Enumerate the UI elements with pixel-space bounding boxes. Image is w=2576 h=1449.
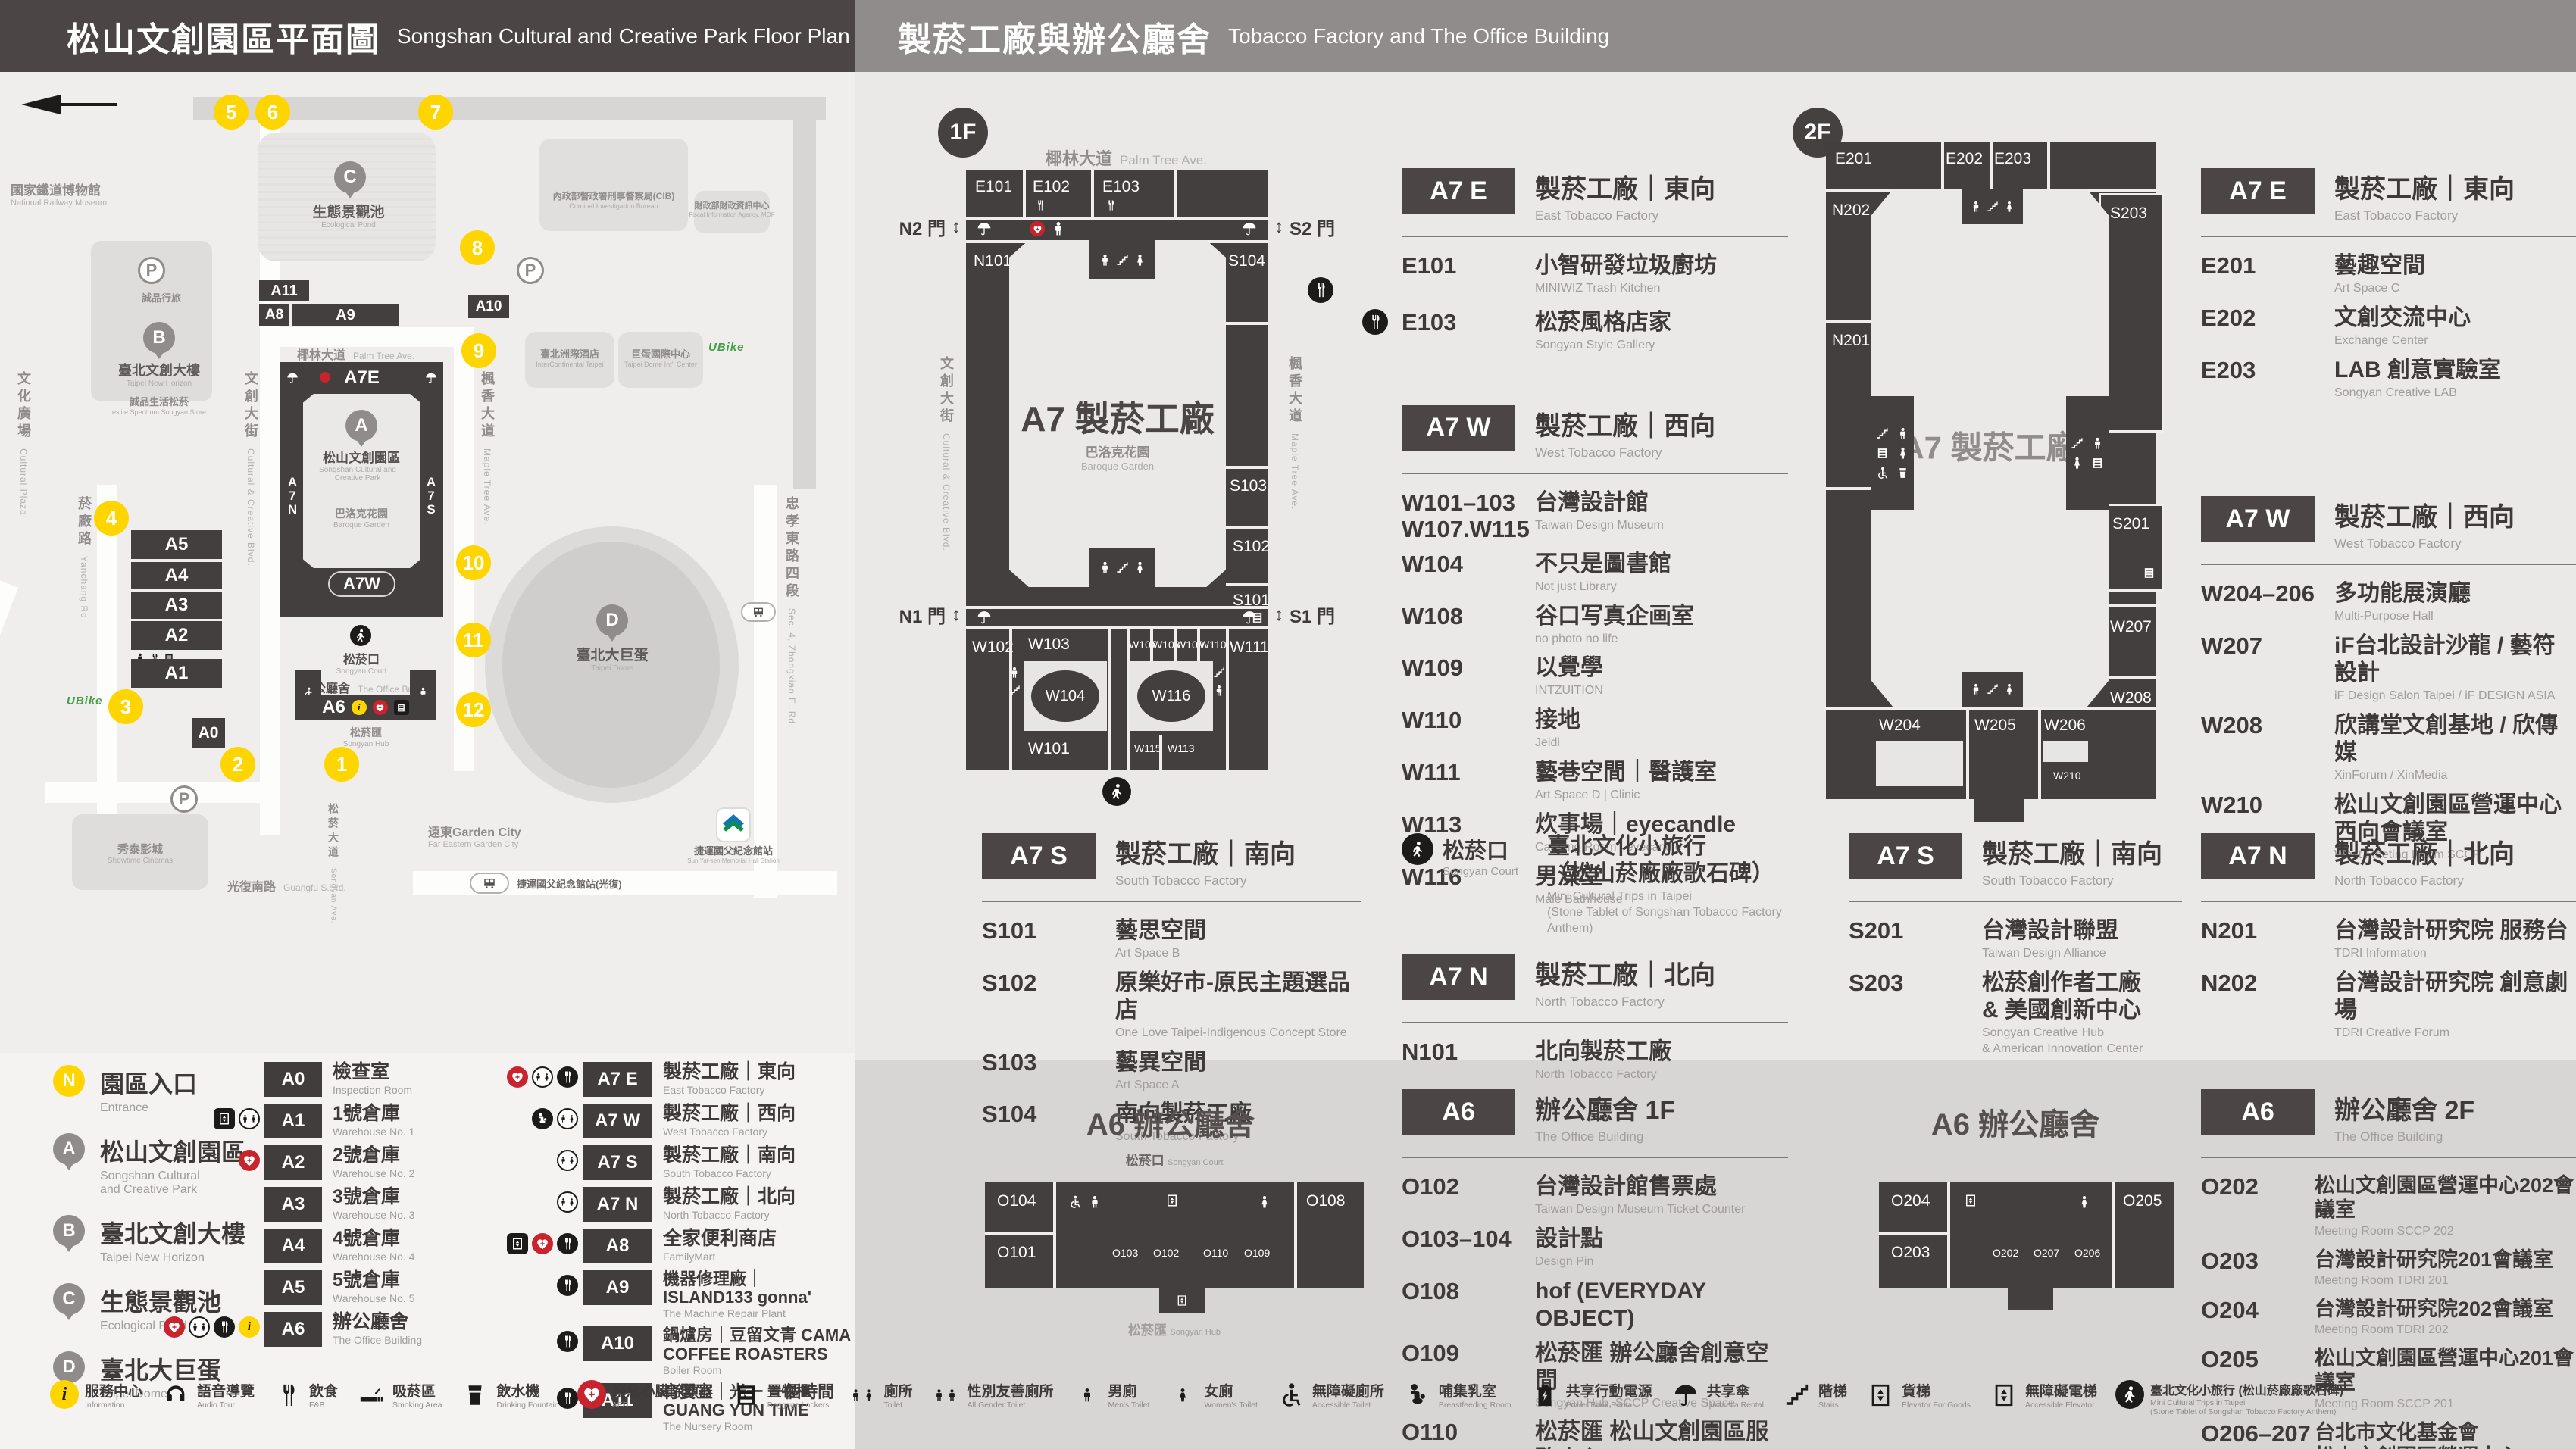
e202-en: Exchange Center xyxy=(2334,333,2471,349)
plan1f-right-road-zh: 楓香大道 xyxy=(1285,356,1305,426)
songyan-hub-park-zh: 松菸匯 xyxy=(343,725,389,740)
goods-elevator-icon xyxy=(1865,1380,1896,1410)
gate-s1-arrows: ↕ xyxy=(1274,604,1283,626)
n202-code: N202 xyxy=(2201,970,2334,1041)
building-a3: A3 xyxy=(131,592,222,619)
listing-row-s203: S203松菸創作者工廠 & 美國創新中心Songyan Creative Hub… xyxy=(1849,970,2182,1057)
listing-row-s103: S103藝異空間Art Space A xyxy=(982,1049,1361,1094)
plan1f-garden-zh: 巴洛克花園 xyxy=(1081,442,1154,461)
a7w-park-bar: A7W xyxy=(280,568,443,600)
legend-a7s-en: South Tobacco Factory xyxy=(663,1167,796,1179)
strip-aed-zh: 緊急心臟除顫器 xyxy=(612,1380,713,1401)
sccp-park-zh: 松山文創園區 xyxy=(308,447,414,466)
facility-icon-strip: i 服務中心Information 語音導覽Audio Tour 飲食F&B 吸… xyxy=(0,1380,2576,1416)
umbrella-icon-n2 xyxy=(977,221,992,236)
cib-en: Criminal Investigation Bureau xyxy=(553,202,675,210)
listing-row-n202: N202台灣設計研究院 創意劇場TDRI Creative Forum xyxy=(2201,970,2576,1041)
plan2f-center-title: A7 製菸工廠 xyxy=(1901,423,2077,469)
legend-a10-en: Boiler Room xyxy=(663,1364,852,1376)
header-right-title: 製菸工廠與辦公廳舍 Tobacco Factory and The Office… xyxy=(898,0,2489,72)
legend-a7n-box: A7 N xyxy=(583,1187,652,1222)
n201-code: N201 xyxy=(2201,917,2334,962)
dome-intl-zh: 巨蛋國際中心 xyxy=(624,346,697,361)
strip-umbrella-zh: 共享傘 xyxy=(1707,1380,1764,1401)
entrance-9: 9 xyxy=(461,333,496,368)
room-e201: E201 xyxy=(1835,150,1872,168)
plan2f-right-cluster xyxy=(2066,396,2109,510)
legend-a3-en: Warehouse No. 3 xyxy=(333,1209,414,1221)
park-title-zh: 松山文創園區平面圖 xyxy=(67,12,380,61)
listing-row-e203: E203LAB 創意實驗室Songyan Creative LAB xyxy=(2201,357,2576,401)
plan1f-left-road-zh: 文創大街 xyxy=(936,356,956,426)
e201-code: E201 xyxy=(2201,252,2334,297)
mrt-en: Sun Yat-sen Memorial Hall Station xyxy=(687,857,780,864)
o202-code: O202 xyxy=(2201,1173,2315,1240)
strip-umbrella-en: Umbrella Rental xyxy=(1707,1401,1764,1410)
mrt-station-label: 捷運國父紀念館站 Sun Yat-sen Memorial Hall Stati… xyxy=(687,843,780,864)
section-a7w-2f: A7 W 製菸工廠｜西向West Tobacco Factory xyxy=(2201,496,2576,551)
legend-a9-zh: 機器修理廠｜ISLAND133 gonna' xyxy=(663,1270,852,1307)
strip-power-bank-zh: 共享行動電源 xyxy=(1566,1380,1652,1401)
strip-fountain-zh: 飲水機 xyxy=(496,1380,558,1401)
restroom-icon xyxy=(557,1108,578,1129)
bus-stop-pill-right xyxy=(741,602,776,622)
plan1f-palm-ave-label: 椰林大道Palm Tree Ave. xyxy=(1046,145,1207,170)
s201-code: S201 xyxy=(1849,917,1982,962)
floor-1f-badge-label: 1F xyxy=(949,120,976,145)
strip-breastfeeding: 哺集乳室Breastfeeding Room xyxy=(1402,1380,1512,1410)
plan1f-right-cluster xyxy=(1213,667,1225,697)
songyankou-name-zh: 臺北文化小旅行 （松山菸廠廠歌石碑） xyxy=(1547,833,1788,888)
legend-a8: A8 全家便利商店FamilyMart xyxy=(496,1229,852,1263)
strip-stairs-en: Stairs xyxy=(1818,1401,1847,1410)
divider xyxy=(2201,564,2576,565)
strip-stairs-zh: 階梯 xyxy=(1818,1380,1847,1401)
o103-en: Design Pin xyxy=(1535,1254,1603,1270)
all-gender-toilet-icon xyxy=(930,1380,961,1410)
strip-mini-trips-zh: 臺北文化小旅行 (松山菸廠廠歌石碑) xyxy=(2150,1380,2343,1398)
eslite-hotel-label: 誠品行旅 xyxy=(142,290,181,304)
fia-en: Fiscal Information Agency, MOF xyxy=(689,211,774,218)
strip-mini-cultural-trips: 臺北文化小旅行 (松山菸廠廠歌石碑)Mini Cultural Trips in… xyxy=(2115,1380,2343,1416)
plan2f-top-notch xyxy=(1962,189,2023,224)
s101-en: Art Space B xyxy=(1115,946,1206,962)
room-n201: N201 xyxy=(1832,332,1870,350)
room-n202: N202 xyxy=(1832,201,1870,220)
a1-code: A1 xyxy=(165,663,189,684)
e201-zh: 藝趣空間 xyxy=(2334,252,2425,279)
strip-accessible-elevator-zh: 無障礙電梯 xyxy=(2025,1380,2097,1401)
strip-smoking-en: Smoking Area xyxy=(392,1401,442,1410)
legend-a0-a6-column: A0 檢查室Inspection Room A1 1號倉庫Warehouse N… xyxy=(178,1062,496,1354)
s103-code: S103 xyxy=(982,1049,1115,1094)
strip-fnb-zh: 飲食 xyxy=(309,1380,338,1401)
section-a7e-2f-box: A7 E xyxy=(2201,168,2315,214)
o103-zh: 設計點 xyxy=(1535,1226,1603,1253)
food-icon xyxy=(214,1316,235,1338)
palm-park-zh: 椰林大道 xyxy=(297,345,345,363)
room-o108: O108 xyxy=(1306,1192,1345,1210)
strip-toilet-en: Toilet xyxy=(883,1401,912,1410)
elevator-icon xyxy=(214,1108,235,1129)
dome-intl-en: Taipei Dome Int'l Center xyxy=(624,361,697,368)
food-icon xyxy=(557,1331,578,1352)
plan1f-garden-label: 巴洛克花園 Baroque Garden xyxy=(1081,442,1154,472)
w109-en: INTZUITION xyxy=(1535,683,1603,699)
room-o104: O104 xyxy=(997,1192,1036,1210)
strip-mens-zh: 男廁 xyxy=(1108,1380,1150,1401)
e101-zh: 小智研發垃圾廚坊 xyxy=(1535,252,1717,279)
room-w101: W101 xyxy=(1028,740,1070,758)
legend-a7n-zh: 製菸工廠｜北向 xyxy=(663,1187,796,1208)
strip-information: i 服務中心Information xyxy=(50,1380,142,1410)
room-w207: W207 xyxy=(2110,618,2152,636)
strip-goods-elevator-en: Elevator For Goods xyxy=(1902,1401,1971,1410)
listing-row-w108: W108谷口写真企画室no photo no life xyxy=(1402,603,1788,648)
pin-d-map: D xyxy=(596,604,628,636)
n202-zh: 台灣設計研究院 創意劇場 xyxy=(2334,970,2576,1024)
wheelchair-icon-a6-1f xyxy=(1068,1195,1082,1209)
room-o207: O207 xyxy=(2034,1247,2059,1259)
section-a7w-1f-box: A7 W xyxy=(1402,405,1515,451)
entrance-6-num: 6 xyxy=(267,101,278,124)
divider xyxy=(1402,1157,1788,1158)
o206-code: O206–207 xyxy=(2201,1420,2315,1449)
a8-code: A8 xyxy=(265,307,283,323)
audio-tour-icon xyxy=(161,1380,191,1410)
listing-row-w208: W208欣講堂文創基地 / 欣傳媒XinForum / XinMedia xyxy=(2201,712,2576,784)
w110-en: Jeidi xyxy=(1535,735,1580,751)
w108-code: W108 xyxy=(1402,603,1535,648)
s102-en: One Love Taipei-Indigenous Concept Store xyxy=(1115,1026,1361,1041)
w111-zh: 藝巷空間｜醫護室 xyxy=(1535,759,1717,786)
o102-code: O102 xyxy=(1402,1173,1535,1218)
legend-a1-en: Warehouse No. 1 xyxy=(333,1126,414,1138)
breastfeeding-icon xyxy=(1402,1380,1433,1410)
listing-row-o103-104: O103–104設計點Design Pin xyxy=(1402,1226,1788,1270)
railway-museum-en: National Railway Museum xyxy=(11,198,107,208)
section-a7w-1f-en: West Tobacco Factory xyxy=(1535,445,1715,461)
pond-zh: 生態景觀池 xyxy=(312,201,384,221)
room-o205: O205 xyxy=(2123,1192,2162,1210)
w109-zh: 以覺學 xyxy=(1535,654,1603,682)
listing-row-e101: E101 小智研發垃圾廚坊MINIWIZ Trash Kitchen xyxy=(1402,252,1788,297)
restroom-icon-a6-1f-left xyxy=(1088,1195,1102,1209)
header-left-title: 松山文創園區平面圖 Songshan Cultural and Creative… xyxy=(67,0,855,72)
building-a11: A11 xyxy=(259,280,309,301)
listing-row-w110: W110接地Jeidi xyxy=(1402,707,1788,751)
n101-code: N101 xyxy=(1402,1038,1535,1083)
s102-code: S102 xyxy=(982,970,1115,1041)
entrance-pin-letter: N xyxy=(62,1070,75,1091)
a6-1f-songyan-hub-label: 松菸匯 Songyan Hub xyxy=(1128,1319,1221,1338)
diagonal-road xyxy=(0,572,18,1053)
food-icon-e102 xyxy=(1034,199,1046,211)
listing-row-o202: O202松山文創園區營運中心202會議室Meeting Room SCCP 20… xyxy=(2201,1173,2576,1240)
pin-a-map: A xyxy=(345,410,377,442)
strip-womens-en: Women's Toilet xyxy=(1204,1401,1257,1410)
section-a7w-2f-zh: 製菸工廠｜西向 xyxy=(2334,496,2515,533)
food-icon xyxy=(557,1066,578,1088)
w109-code: W109 xyxy=(1402,654,1535,699)
a7w-park-code: A7W xyxy=(328,571,395,597)
legend-a5-box: A5 xyxy=(264,1270,322,1305)
a7s-park-col: A7S xyxy=(420,476,442,517)
a7-complex-park: A7E A7N A7S A 松山文創園區 Songshan Cultural a… xyxy=(280,362,443,617)
w104-en: Not just Library xyxy=(1535,579,1671,595)
entrance-7: 7 xyxy=(418,95,453,130)
umbrella-icon-n1 xyxy=(977,610,992,625)
n201-zh: 台灣設計研究院 服務台 xyxy=(2334,917,2568,945)
room-w102: W102 xyxy=(972,639,1014,657)
sccp-pin-letter: A xyxy=(62,1138,75,1160)
plan2f-building: E201 E202 E203 N202 N201 S203 S201 W207 … xyxy=(1826,142,2156,799)
room-w115: W115 xyxy=(1134,742,1161,754)
eslite-spectrum-zh: 誠品生活松菸 xyxy=(112,394,206,408)
strip-audio-tour: 語音導覽Audio Tour xyxy=(161,1380,255,1410)
room-s102: S102 xyxy=(1233,538,1270,556)
sccp-park-label: 松山文創園區 Songshan Cultural and Creative Pa… xyxy=(308,447,414,482)
plan1f-left-cluster xyxy=(1008,667,1021,697)
divider xyxy=(1402,473,1788,474)
o203-zh: 台灣設計研究院201會議室 xyxy=(2315,1248,2553,1272)
o204-en: Meeting Room TDRI 202 xyxy=(2315,1323,2553,1338)
aed-icon xyxy=(532,1233,553,1254)
factory-title-en: Tobacco Factory and The Office Building xyxy=(1228,24,1609,48)
entrance-5: 5 xyxy=(214,95,249,130)
strip-womens-zh: 女廁 xyxy=(1204,1380,1257,1401)
a6-1f-building: O104 O101 O103 O102 O110 O109 O108 xyxy=(985,1182,1364,1288)
a6-park-code: A6 xyxy=(322,697,345,718)
legend-a7s-zh: 製菸工廠｜南向 xyxy=(663,1145,796,1166)
strip-smoking-zh: 吸菸區 xyxy=(392,1380,442,1401)
e202-code: E202 xyxy=(2201,304,2334,349)
restroom-icon xyxy=(189,1316,210,1338)
food-icon-e103 xyxy=(1105,199,1117,211)
strip-mens-en: Men's Toilet xyxy=(1108,1401,1150,1410)
s201-en: Taiwan Design Alliance xyxy=(1982,946,2118,962)
drinking-fountain-icon xyxy=(460,1380,490,1410)
entrance-7-num: 7 xyxy=(430,101,441,124)
palm-park-en: Palm Tree Ave. xyxy=(353,351,414,361)
section-a7s-1f-zh: 製菸工廠｜南向 xyxy=(1115,833,1296,870)
o110-zh: 松菸匯 松山文創園區服務中心 xyxy=(1535,1419,1788,1449)
w207-en: iF Design Salon Taipei / iF DESIGN ASIA xyxy=(2334,689,2576,704)
w101-zh: 台灣設計館 xyxy=(1535,489,1664,517)
entrance-1-num: 1 xyxy=(336,753,347,776)
listing-2f-south: A7 S 製菸工廠｜南向South Tobacco Factory S201台灣… xyxy=(1849,833,2182,1064)
park-right-road xyxy=(793,117,816,489)
legend-a1: A1 1號倉庫Warehouse No. 1 xyxy=(178,1104,496,1138)
plan1f-top-notch xyxy=(1089,240,1155,279)
section-a7s-1f: A7 S 製菸工廠｜南向South Tobacco Factory xyxy=(982,833,1361,888)
room-s201: S201 xyxy=(2112,515,2149,533)
plan1f-building: E101 E102 E103 N101 S104 S103 S102 S101 xyxy=(966,170,1268,770)
a6-1f-court-zh: 松菸口 xyxy=(1126,1154,1165,1168)
entrance-6: 6 xyxy=(255,95,290,130)
legend-a4-en: Warehouse No. 4 xyxy=(333,1251,414,1263)
entrance-8: 8 xyxy=(460,230,495,265)
section-a6-1f-box: A6 xyxy=(1402,1089,1515,1135)
strip-all-gender-zh: 性別友善廁所 xyxy=(967,1380,1053,1401)
a6-2f-stem xyxy=(2008,1288,2053,1310)
s102-zh: 原樂好市-原民主題選品店 xyxy=(1115,970,1361,1024)
maple-ave-park-label: 楓香大道Maple Tree Ave. xyxy=(477,371,497,526)
strip-toilet: 廁所Toilet xyxy=(847,1380,912,1410)
o102-zh: 台灣設計館售票處 xyxy=(1535,1173,1745,1201)
building-a1: A1 xyxy=(131,659,222,688)
e101-en: MINIWIZ Trash Kitchen xyxy=(1535,281,1717,297)
legend-a7s-box: A7 S xyxy=(583,1145,652,1180)
room-o204: O204 xyxy=(1891,1192,1930,1210)
e202-zh: 文創交流中心 xyxy=(2334,304,2471,332)
room-n101: N101 xyxy=(974,252,1011,270)
maple-ave-park-en: Maple Tree Ave. xyxy=(482,448,492,526)
floor-plan-poster: 松山文創園區平面圖 Songshan Cultural and Creative… xyxy=(0,0,2576,1449)
plan1f-garden-en: Baroque Garden xyxy=(1081,461,1154,472)
section-a7n-2f-box: A7 N xyxy=(2201,833,2315,879)
listing-row-e103: E103 松菸風格店家Songyan Style Gallery xyxy=(1402,309,1788,354)
strip-lockers: 置物櫃Baggage Lockers xyxy=(731,1380,830,1410)
new-horizon-label: 臺北文創大樓 Taipei New Horizon 誠品生活松菸 eslite … xyxy=(112,360,206,416)
baroque-park-label: 巴洛克花園 Baroque Garden xyxy=(333,506,389,529)
legend-a3-box: A3 xyxy=(264,1187,322,1222)
sccp-pin-icon: A xyxy=(53,1133,85,1165)
listing-row-o203: O203台灣設計研究院201會議室Meeting Room TDRI 201 xyxy=(2201,1248,2576,1289)
legend-a0-zh: 檢查室 xyxy=(333,1062,412,1083)
entrance-4: 4 xyxy=(94,501,129,536)
listing-2f-north: A7 N 製菸工廠｜北向North Tobacco Factory N201台灣… xyxy=(2201,833,2576,1049)
entrance-pin-icon: N xyxy=(53,1065,85,1097)
zhongxiao-label: 忠孝東路四段Sec. 4, Zhongxiao E. Rd. xyxy=(782,496,802,727)
plan2f-left-cluster xyxy=(1871,396,1914,510)
floor-1f-badge: 1F xyxy=(938,108,988,158)
info-icon: i xyxy=(50,1380,79,1409)
zhongxiao-e-rd-road xyxy=(754,485,777,898)
building-a5: A5 xyxy=(131,530,222,559)
section-a7w-2f-en: West Tobacco Factory xyxy=(2334,536,2515,551)
plan2f-bottom-notch xyxy=(1962,672,2023,707)
strip-lockers-zh: 置物櫃 xyxy=(767,1380,830,1401)
floor-2f-badge-label: 2F xyxy=(1804,120,1830,145)
section-a7n-1f-box: A7 N xyxy=(1402,954,1515,1000)
legend-a7w-en: West Tobacco Factory xyxy=(663,1126,796,1138)
strip-fnb-en: F&B xyxy=(309,1401,338,1410)
a6-2f-building: O204 O203 O202 O207 O206 O205 xyxy=(1879,1182,2174,1288)
intercontinental-en: InterContinental Taipei xyxy=(536,361,603,368)
taipei-dome-label: 臺北大巨蛋 Taipei Dome xyxy=(576,644,648,673)
section-a6-2f-en: The Office Building xyxy=(2334,1129,2474,1145)
room-o110: O110 xyxy=(1203,1247,1228,1259)
north-arrow xyxy=(21,95,120,114)
fia-zh: 財政部財政資訊中心 xyxy=(689,199,774,211)
aed-icon xyxy=(507,1066,528,1088)
strip-stairs: 階梯Stairs xyxy=(1782,1380,1847,1410)
a11-code: A11 xyxy=(270,283,298,300)
entrance-8-num: 8 xyxy=(472,236,483,260)
sccp-park-en: Songshan Cultural and Creative Park xyxy=(308,466,407,482)
e101-code: E101 xyxy=(1402,252,1535,297)
section-a7e-1f-zh: 製菸工廠｜東向 xyxy=(1535,168,1715,205)
strip-mens: 男廁Men's Toilet xyxy=(1072,1380,1150,1410)
legend-a7s: A7 S 製菸工廠｜南向South Tobacco Factory xyxy=(496,1145,852,1180)
railway-museum-label: 國家鐵道博物館 National Railway Museum xyxy=(11,180,107,208)
section-a7w-1f: A7 W 製菸工廠｜西向West Tobacco Factory xyxy=(1402,405,1788,461)
listing-row-o102: O102台灣設計館售票處Taiwan Design Museum Ticket … xyxy=(1402,1173,1788,1218)
legend-a2: A2 2號倉庫Warehouse No. 2 xyxy=(178,1145,496,1180)
listing-row-e201: E201藝趣空間Art Space C xyxy=(2201,252,2576,297)
building-a2: A2 xyxy=(131,621,222,650)
entrance-2: 2 xyxy=(220,747,255,782)
strip-accessible-elevator: 無障礙電梯Accessible Elevator xyxy=(1989,1380,2097,1410)
cultural-plaza-zh: 文化廣場 xyxy=(14,371,33,441)
park-map-ground: 國家鐵道博物館 National Railway Museum C 生態景觀池 … xyxy=(0,72,855,1053)
songyan-hub-park-en: Songyan Hub xyxy=(343,740,389,748)
gate-n2: N2 門↕ xyxy=(871,214,961,240)
aed-icon-a6-park xyxy=(373,700,388,715)
a7e-park-bar: A7E xyxy=(280,362,443,394)
room-o102: O102 xyxy=(1153,1247,1179,1259)
listing-2f-east-west: A7 E 製菸工廠｜東向East Tobacco Factory E201藝趣空… xyxy=(2201,168,2576,871)
taipei-dome-en: Taipei Dome xyxy=(576,664,648,673)
w208-code: W208 xyxy=(2201,712,2334,784)
songyan-ave-label: 松菸大道Songyan Ave. xyxy=(326,803,341,924)
new-horizon-en: Taipei New Horizon xyxy=(112,379,206,388)
listing-row-w207: W207iF台北設計沙龍 / 藝符設計iF Design Salon Taipe… xyxy=(2201,632,2576,704)
gate-s2: ↕S2 門 xyxy=(1274,214,1335,240)
pond-label: 生態景觀池 Ecological Pond xyxy=(312,201,384,230)
listing-1f-east-west: A7 E 製菸工廠｜東向East Tobacco Factory E101 小智… xyxy=(1402,168,1788,915)
listing-row-o206-207: O206–207台北市文化基金會 松山文創園區營運中心Taipei Cultur… xyxy=(2201,1420,2576,1449)
a7e-park-code: A7E xyxy=(344,367,380,389)
new-horizon-pin-icon: B xyxy=(53,1215,85,1247)
songyan-court-park-label: 松菸口 Songyan Court xyxy=(336,649,387,676)
divider xyxy=(982,901,1361,902)
a0-code: A0 xyxy=(199,724,219,742)
w108-en: no photo no life xyxy=(1535,632,1694,648)
gate-s1: ↕S1 門 xyxy=(1274,601,1335,628)
plan1f-bottom-notch xyxy=(1089,548,1155,587)
e103-code: E103 xyxy=(1402,309,1535,354)
section-a7s-2f-box: A7 S xyxy=(1849,833,1962,879)
listing-row-songyankou: 松菸口Songyan Court 臺北文化小旅行 （松山菸廠廠歌石碑）Mini … xyxy=(1402,833,1788,936)
strip-all-gender-en: All Gender Toilet xyxy=(967,1401,1053,1410)
strip-accessible-toilet-zh: 無障礙廁所 xyxy=(1312,1380,1384,1401)
palm-ave-park-label: 椰林大道Palm Tree Ave. xyxy=(297,345,414,363)
legend-a7w: A7 W 製菸工廠｜西向West Tobacco Factory xyxy=(496,1104,852,1138)
entrance-2-num: 2 xyxy=(233,753,243,776)
section-a7e-2f-zh: 製菸工廠｜東向 xyxy=(2334,168,2515,205)
w101-en: Taiwan Design Museum xyxy=(1535,518,1664,534)
section-a7e-1f-box: A7 E xyxy=(1402,168,1515,214)
room-w103: W103 xyxy=(1028,635,1070,654)
building-a9: A9 xyxy=(292,304,399,326)
new-horizon-pin-letter: B xyxy=(62,1220,75,1241)
strip-goods-elevator-zh: 貨梯 xyxy=(1902,1380,1971,1401)
room-w204-inner xyxy=(1876,741,1963,786)
restroom-icon xyxy=(532,1066,553,1088)
s103-zh: 藝異空間 xyxy=(1115,1049,1206,1076)
legend-a4-box: A4 xyxy=(264,1229,322,1263)
divider xyxy=(2201,1157,2576,1158)
room-o206: O206 xyxy=(2074,1247,2100,1259)
section-a7s-2f-en: South Tobacco Factory xyxy=(1982,873,2162,888)
eslite-spectrum-en: eslite Spectrum Songyan Store xyxy=(112,408,206,416)
accessible-toilet-icon xyxy=(1276,1380,1306,1410)
gate-s2-arrows: ↕ xyxy=(1274,217,1283,238)
dome-pin-icon: D xyxy=(53,1351,85,1383)
s203-en: Songyan Creative Hub & American Innovati… xyxy=(1982,1026,2143,1057)
